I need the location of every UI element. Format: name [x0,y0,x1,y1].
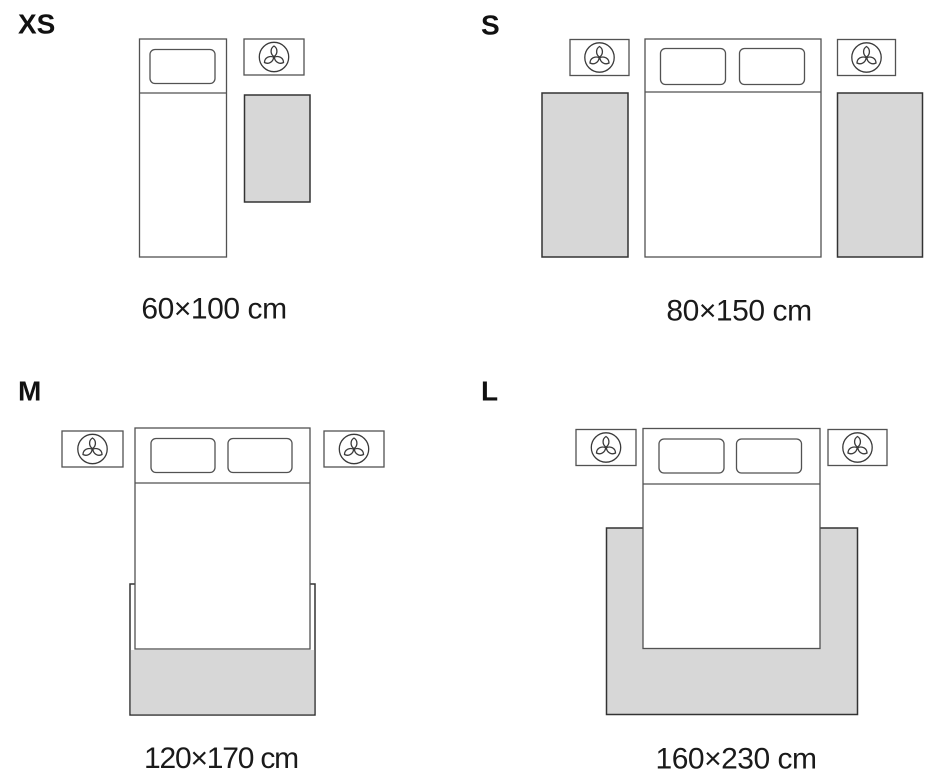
svg-text:XS: XS [18,9,55,40]
svg-text:60×100 cm: 60×100 cm [141,293,286,326]
svg-text:80×150 cm: 80×150 cm [666,295,811,328]
svg-text:M: M [18,376,41,407]
svg-text:S: S [481,10,500,41]
svg-text:L: L [481,376,498,407]
svg-text:120×170 cm: 120×170 cm [144,742,298,775]
svg-text:160×230 cm: 160×230 cm [656,743,817,776]
